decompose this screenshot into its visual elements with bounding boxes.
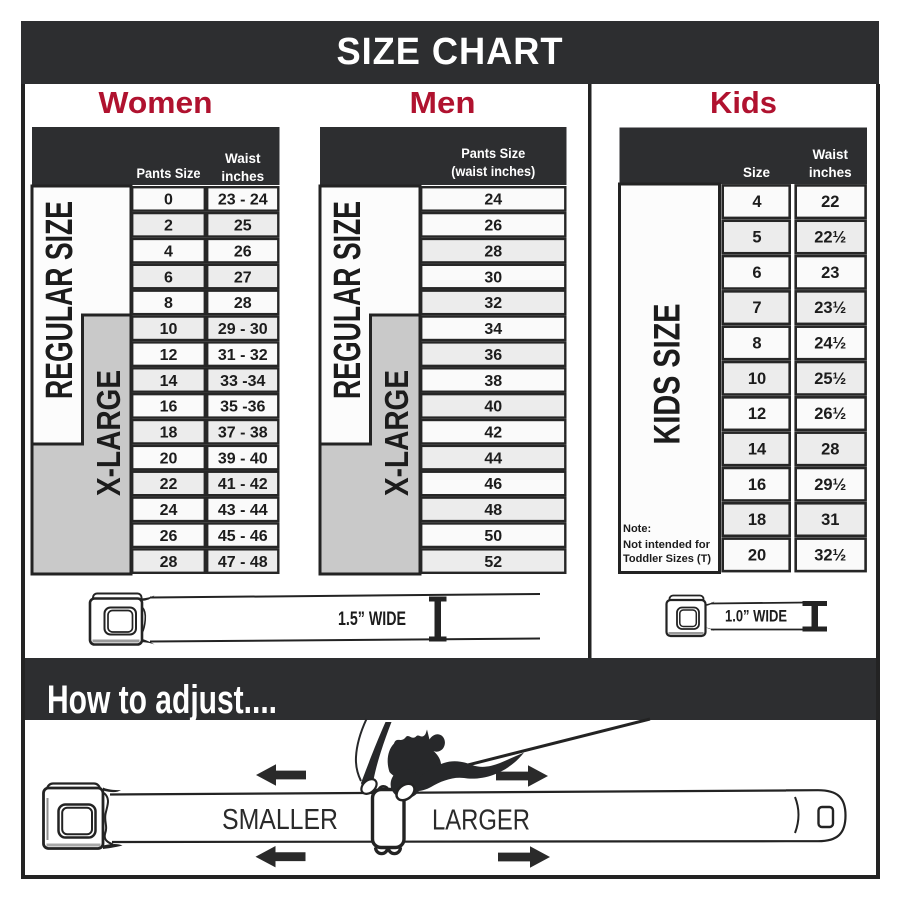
svg-text:Toddler Sizes (T): Toddler Sizes (T) <box>623 553 711 565</box>
svg-text:(waist inches): (waist inches) <box>451 164 535 179</box>
svg-text:Note:: Note: <box>623 523 651 535</box>
svg-text:14: 14 <box>160 373 178 390</box>
svg-text:26: 26 <box>160 528 178 545</box>
svg-text:REGULAR SIZE: REGULAR SIZE <box>327 201 369 399</box>
svg-text:31 - 32: 31 - 32 <box>218 347 268 364</box>
svg-text:36: 36 <box>484 347 502 364</box>
svg-text:20: 20 <box>748 546 766 564</box>
svg-text:Men: Men <box>410 85 476 120</box>
svg-text:24½: 24½ <box>814 334 846 352</box>
svg-text:45 - 46: 45 - 46 <box>218 528 268 545</box>
svg-text:24: 24 <box>484 192 502 209</box>
svg-text:20: 20 <box>160 450 178 467</box>
svg-text:8: 8 <box>164 295 173 312</box>
svg-text:43 - 44: 43 - 44 <box>218 502 268 519</box>
svg-text:37 - 38: 37 - 38 <box>218 425 268 442</box>
svg-text:inches: inches <box>221 169 264 184</box>
svg-text:16: 16 <box>748 476 766 494</box>
svg-text:X-LARGE: X-LARGE <box>378 370 415 496</box>
svg-text:10: 10 <box>748 370 766 388</box>
svg-text:26: 26 <box>484 218 502 235</box>
svg-text:Waist: Waist <box>225 151 261 166</box>
svg-text:Pants Size: Pants Size <box>137 166 201 181</box>
svg-text:Pants Size: Pants Size <box>461 146 525 161</box>
svg-text:16: 16 <box>160 399 178 416</box>
svg-text:Size: Size <box>743 165 771 180</box>
svg-text:5: 5 <box>752 229 761 247</box>
svg-text:7: 7 <box>752 299 761 317</box>
svg-text:1.5” WIDE: 1.5” WIDE <box>338 609 406 630</box>
svg-text:KIDS SIZE: KIDS SIZE <box>647 304 688 445</box>
svg-text:28: 28 <box>234 295 252 312</box>
svg-text:47 - 48: 47 - 48 <box>218 554 268 571</box>
svg-text:40: 40 <box>484 399 502 416</box>
svg-text:23: 23 <box>821 264 839 282</box>
svg-text:10: 10 <box>160 321 178 338</box>
svg-text:52: 52 <box>484 554 502 571</box>
svg-text:SIZE CHART: SIZE CHART <box>337 31 564 73</box>
svg-text:25: 25 <box>234 218 252 235</box>
svg-text:0: 0 <box>164 192 173 209</box>
svg-text:46: 46 <box>484 476 502 493</box>
svg-text:39 - 40: 39 - 40 <box>218 450 268 467</box>
svg-text:14: 14 <box>748 440 767 458</box>
svg-text:22: 22 <box>821 193 839 211</box>
svg-text:23½: 23½ <box>814 299 846 317</box>
svg-text:LARGER: LARGER <box>432 805 530 837</box>
svg-text:34: 34 <box>484 321 502 338</box>
svg-text:23 - 24: 23 - 24 <box>218 192 268 209</box>
svg-text:1.0” WIDE: 1.0” WIDE <box>725 608 787 626</box>
svg-text:12: 12 <box>160 347 178 364</box>
svg-text:29½: 29½ <box>814 476 846 494</box>
svg-text:28: 28 <box>484 243 502 260</box>
svg-text:38: 38 <box>484 373 502 390</box>
svg-text:Waist: Waist <box>812 147 848 162</box>
svg-text:22½: 22½ <box>814 229 846 247</box>
svg-text:25½: 25½ <box>814 370 846 388</box>
svg-text:30: 30 <box>484 269 502 286</box>
svg-text:6: 6 <box>164 269 173 286</box>
svg-text:41 - 42: 41 - 42 <box>218 476 268 493</box>
svg-text:26: 26 <box>234 243 252 260</box>
svg-text:22: 22 <box>160 476 178 493</box>
svg-text:Women: Women <box>99 85 213 120</box>
svg-text:18: 18 <box>160 425 178 442</box>
svg-text:48: 48 <box>484 502 502 519</box>
svg-text:SMALLER: SMALLER <box>222 804 338 836</box>
svg-text:29 - 30: 29 - 30 <box>218 321 268 338</box>
svg-text:inches: inches <box>809 165 852 180</box>
svg-text:42: 42 <box>484 425 502 442</box>
svg-text:4: 4 <box>164 243 173 260</box>
svg-text:Kids: Kids <box>710 85 777 120</box>
svg-text:X-LARGE: X-LARGE <box>90 370 127 496</box>
svg-text:4: 4 <box>752 193 762 211</box>
svg-text:2: 2 <box>164 218 173 235</box>
svg-text:35 -36: 35 -36 <box>220 399 265 416</box>
svg-text:How to adjust....: How to adjust.... <box>47 678 277 722</box>
svg-text:33 -34: 33 -34 <box>220 373 265 390</box>
svg-text:8: 8 <box>752 334 761 352</box>
svg-text:44: 44 <box>484 450 502 467</box>
svg-text:32: 32 <box>484 295 502 312</box>
svg-text:Not intended for: Not intended for <box>623 539 711 551</box>
svg-text:28: 28 <box>160 554 178 571</box>
svg-text:28: 28 <box>821 440 839 458</box>
svg-text:32½: 32½ <box>814 546 846 564</box>
svg-text:6: 6 <box>752 264 761 282</box>
svg-text:31: 31 <box>821 511 839 529</box>
svg-text:24: 24 <box>160 502 178 519</box>
svg-text:12: 12 <box>748 405 766 423</box>
svg-text:26½: 26½ <box>814 405 846 423</box>
svg-text:50: 50 <box>484 528 502 545</box>
svg-text:18: 18 <box>748 511 766 529</box>
svg-text:27: 27 <box>234 269 252 286</box>
svg-text:REGULAR SIZE: REGULAR SIZE <box>39 201 81 399</box>
